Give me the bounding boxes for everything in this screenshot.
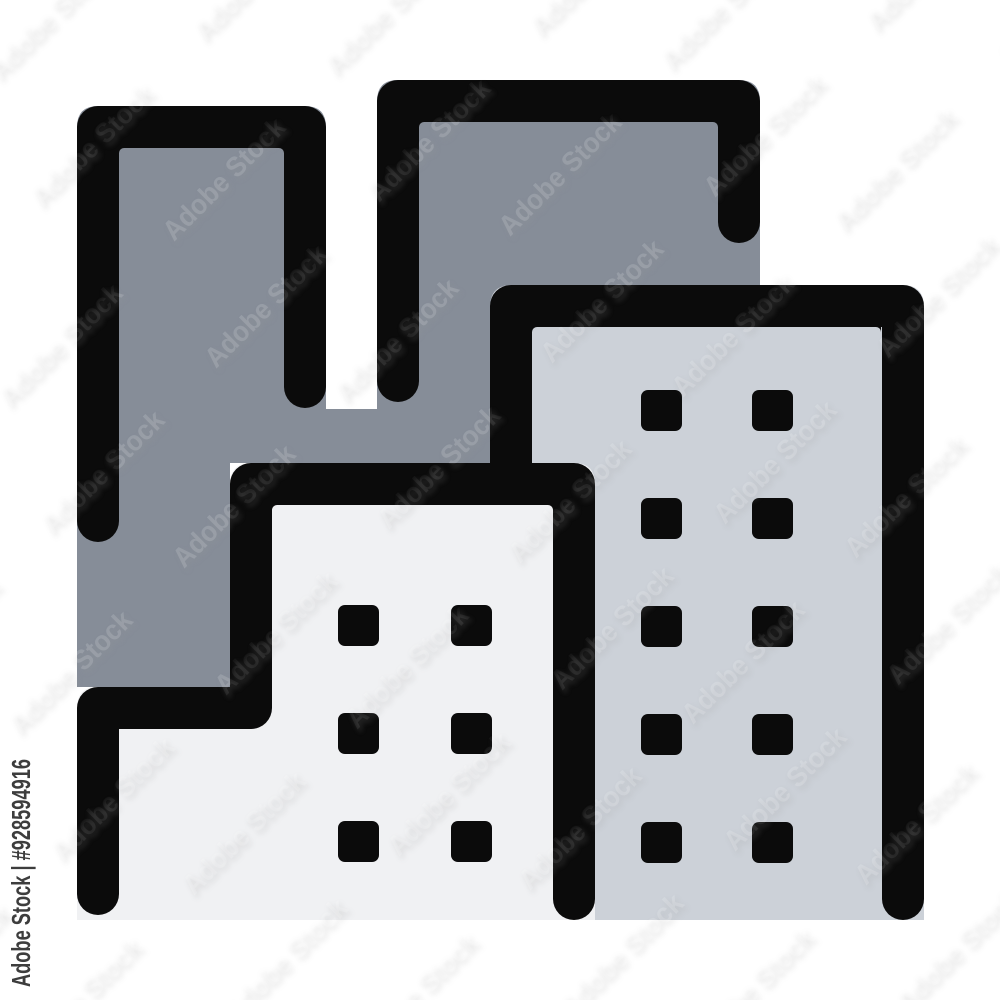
- svg-text:Adobe Stock | #928594916: Adobe Stock | #928594916: [6, 759, 36, 987]
